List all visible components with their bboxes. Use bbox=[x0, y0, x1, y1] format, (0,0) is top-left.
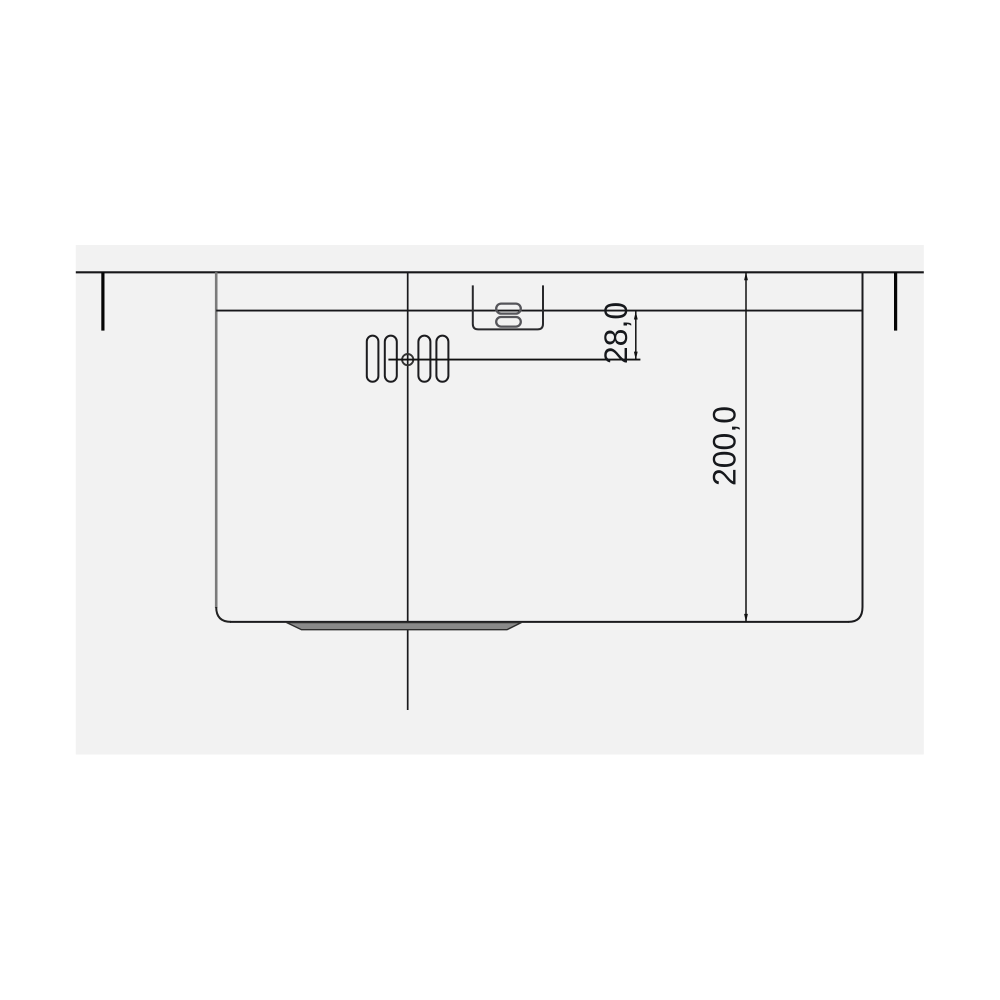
svg-text:200,0: 200,0 bbox=[707, 406, 743, 486]
svg-text:28,0: 28,0 bbox=[598, 302, 634, 364]
